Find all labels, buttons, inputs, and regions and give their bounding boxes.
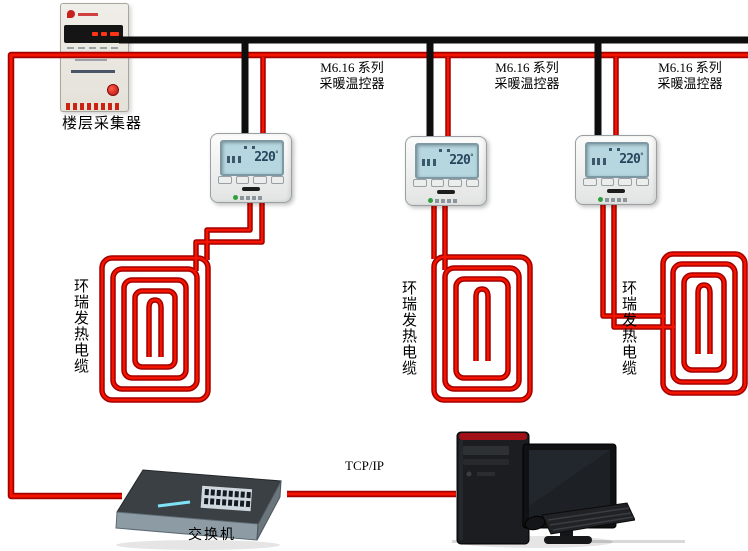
collector-mark <box>78 47 85 49</box>
collector-mark <box>67 47 74 49</box>
thermostat-label-line2: 采暖温控器 <box>477 76 577 92</box>
thermostat-label-line2: 采暖温控器 <box>640 76 740 92</box>
wiring-diagram: 220° 220° 220° <box>0 0 748 551</box>
collector-red-button <box>107 84 119 96</box>
thermostat-slot <box>242 187 260 191</box>
collector-text-mark <box>71 70 115 73</box>
floor-collector-device <box>60 3 129 112</box>
thermostat-brand <box>233 195 262 200</box>
collector-display <box>64 25 123 43</box>
thermostat-3: 220° <box>575 135 657 205</box>
degree-sign: ° <box>470 153 473 161</box>
thermostat-buttons <box>413 179 479 187</box>
display-segment <box>101 32 107 36</box>
cable-label-1: 环瑞发热电缆 <box>70 278 91 374</box>
tcpip-label: TCP/IP <box>345 458 384 474</box>
terminal-mark <box>94 103 98 110</box>
tower-red-accent <box>459 433 527 440</box>
terminal-mark <box>80 103 84 110</box>
thermostat-3-lcd: 220° <box>585 142 649 178</box>
thermostat-slot <box>607 189 625 193</box>
thermostat-1-reading: 220 <box>254 150 274 165</box>
thermostat-buttons <box>583 178 649 186</box>
thermostat-2-reading: 220 <box>449 153 469 168</box>
heating-cable-outline <box>102 57 745 400</box>
brand-dot-icon <box>428 198 433 203</box>
degree-sign: ° <box>640 152 643 160</box>
collector-text-mark <box>75 59 107 61</box>
tower-power-button <box>467 472 472 477</box>
display-segment <box>92 32 98 36</box>
thermostat-1: 220° <box>210 133 292 203</box>
computer-workstation <box>445 420 635 551</box>
terminal-mark <box>87 103 91 110</box>
display-segment <box>110 32 119 36</box>
terminal-mark <box>115 103 119 110</box>
thermostat-1-label: M6.16 系列 采暖温控器 <box>302 60 402 92</box>
tower-drive-bay <box>463 446 509 455</box>
collector-logo-icon <box>67 10 75 18</box>
thermostat-brand <box>428 198 457 203</box>
brand-dot-icon <box>233 195 238 200</box>
terminal-mark <box>66 103 70 110</box>
cable-label-2: 环瑞发热电缆 <box>398 280 419 376</box>
tower-drive-bay <box>463 459 509 465</box>
terminal-mark <box>101 103 105 110</box>
thermostat-brand <box>598 197 627 202</box>
heating-cable <box>102 57 745 400</box>
collector-mark <box>100 47 107 49</box>
thermostat-3-reading: 220 <box>619 152 639 167</box>
switch-port-panel <box>201 486 252 511</box>
thermostat-1-lcd: 220° <box>220 140 284 176</box>
terminal-mark <box>108 103 112 110</box>
collector-logo-text-mark <box>78 13 98 16</box>
switch-label: 交换机 <box>188 524 236 544</box>
computer-tower <box>457 432 529 544</box>
terminal-mark <box>73 103 77 110</box>
thermostat-label-line1: M6.16 系列 <box>477 60 577 76</box>
thermostat-label-line2: 采暖温控器 <box>302 76 402 92</box>
thermostat-2: 220° <box>405 136 487 206</box>
monitor-base <box>544 536 592 544</box>
collector-mark <box>111 47 118 49</box>
thermostat-slot <box>437 190 455 194</box>
brand-dot-icon <box>598 197 603 202</box>
thermostat-2-lcd: 220° <box>415 143 479 179</box>
collector-label: 楼层采集器 <box>62 112 142 133</box>
cable-label-3: 环瑞发热电缆 <box>618 280 639 376</box>
thermostat-2-label: M6.16 系列 采暖温控器 <box>477 60 577 92</box>
collector-mark <box>89 47 96 49</box>
thermostat-label-line1: M6.16 系列 <box>640 60 740 76</box>
thermostat-buttons <box>218 176 284 184</box>
thermostat-3-label: M6.16 系列 采暖温控器 <box>640 60 740 92</box>
thermostat-label-line1: M6.16 系列 <box>302 60 402 76</box>
degree-sign: ° <box>275 150 278 158</box>
